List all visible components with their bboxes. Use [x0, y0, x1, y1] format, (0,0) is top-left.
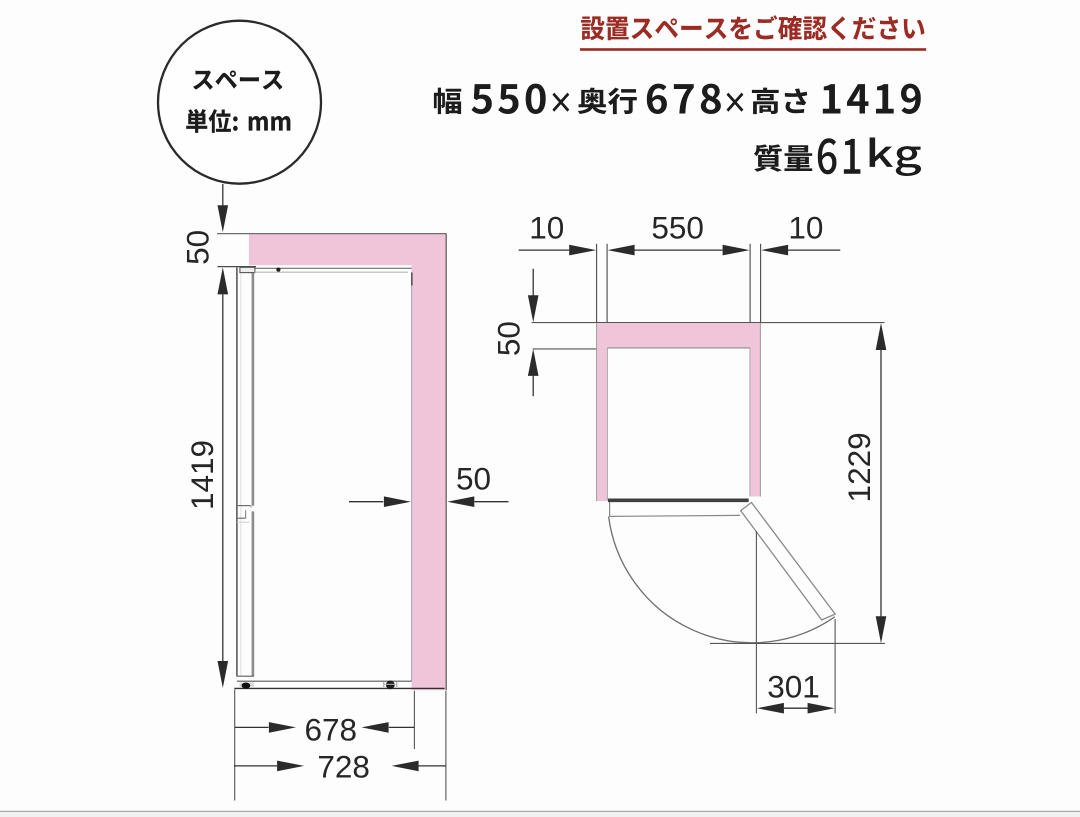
svg-text:678: 678: [305, 711, 358, 747]
svg-text:1229: 1229: [841, 432, 877, 502]
svg-text:1419: 1419: [184, 440, 220, 510]
svg-text:50: 50: [180, 230, 216, 265]
svg-text:728: 728: [317, 749, 370, 785]
svg-text:10: 10: [529, 210, 564, 246]
svg-text:301: 301: [767, 669, 820, 705]
svg-text:50: 50: [491, 321, 527, 356]
svg-text:50: 50: [456, 461, 491, 497]
svg-text:10: 10: [788, 210, 823, 246]
svg-text:550: 550: [651, 210, 704, 246]
